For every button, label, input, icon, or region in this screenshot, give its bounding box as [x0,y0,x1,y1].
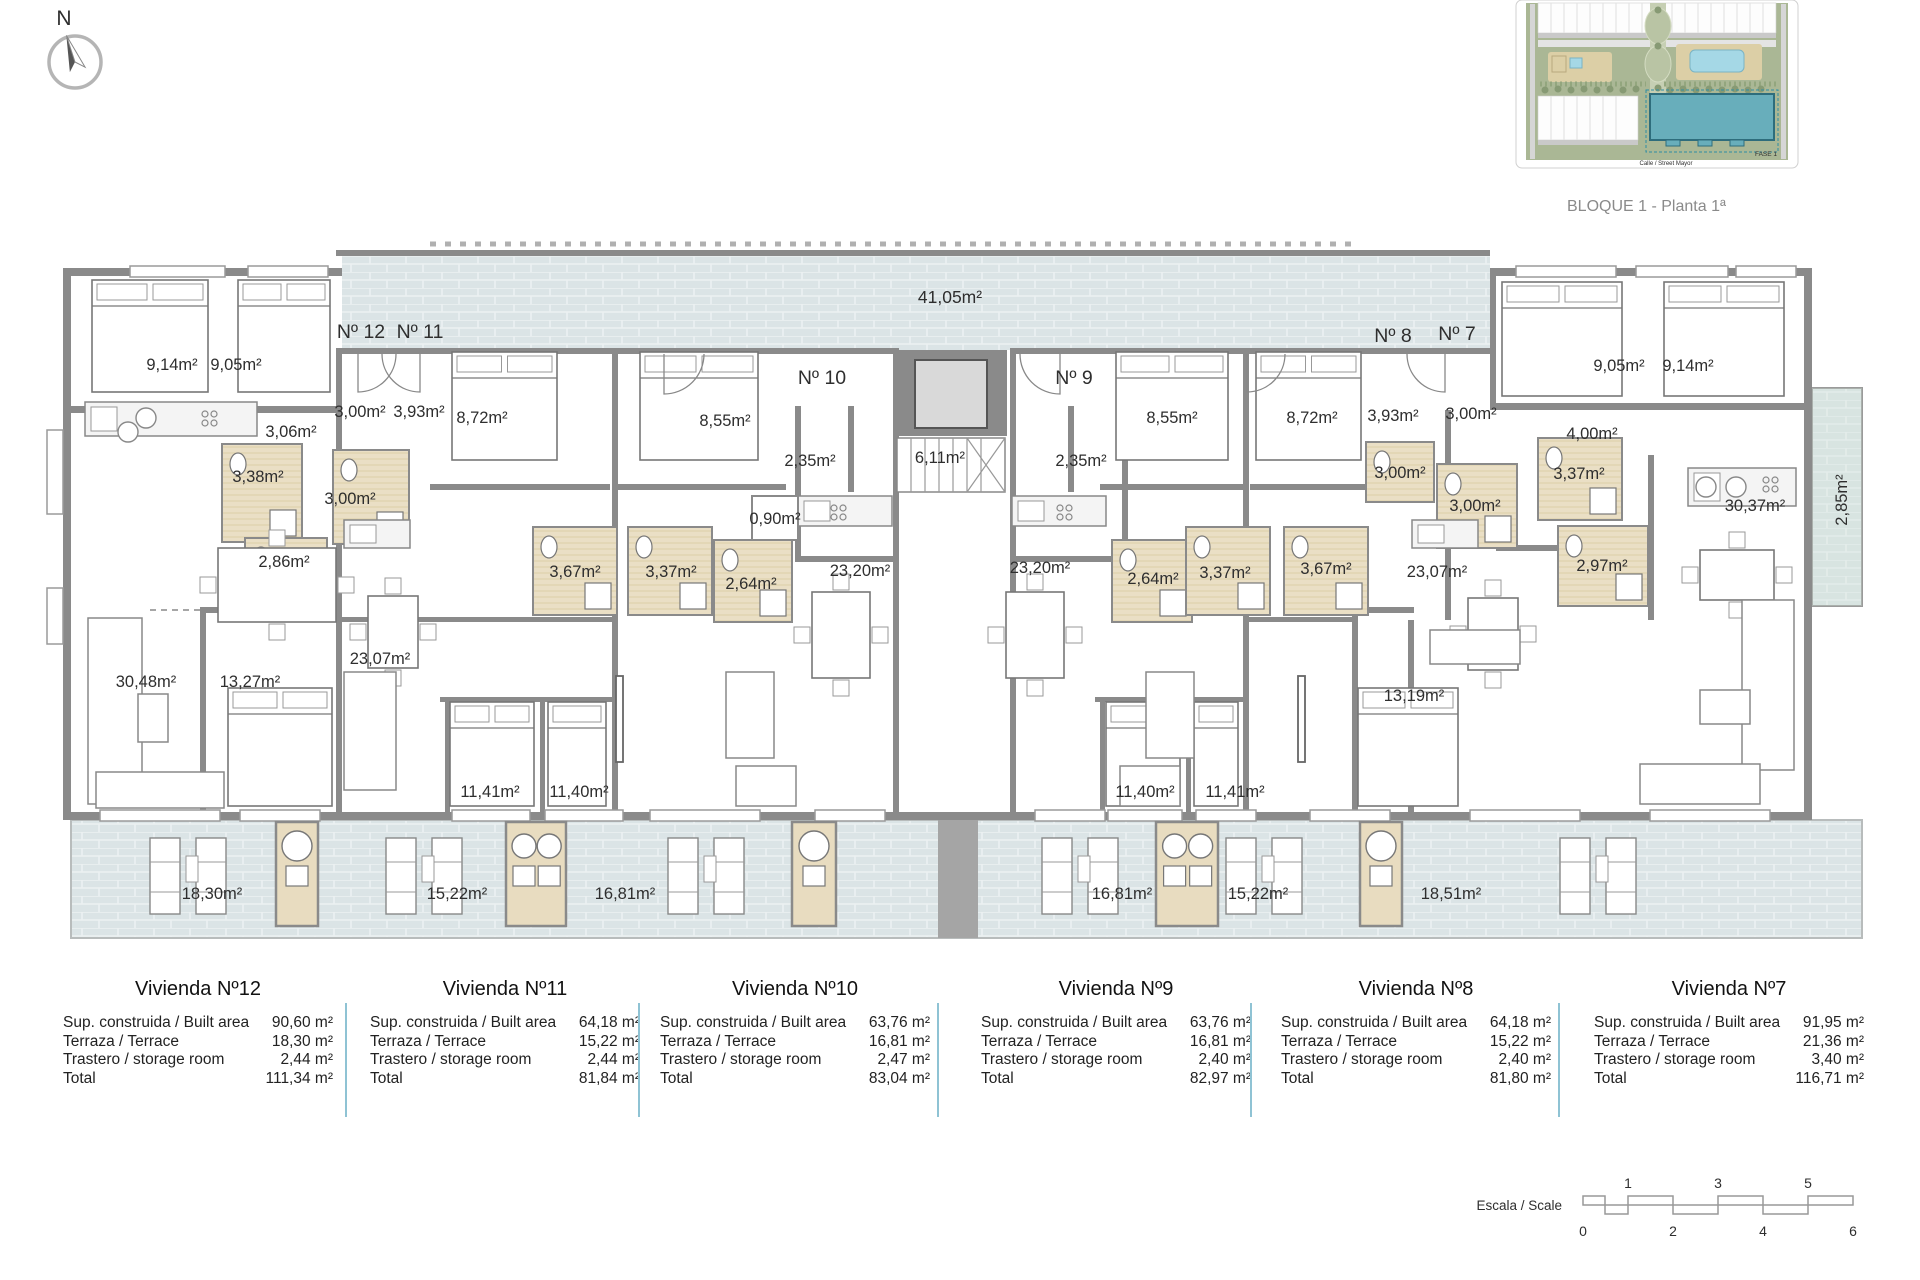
area-row-value: 16,81 m² [1190,1033,1251,1052]
area-row-label: Total [1281,1070,1314,1089]
area-row: Terraza / Terrace21,36 m² [1594,1033,1864,1052]
area-table-column: Vivienda Nº9Sup. construida / Built area… [981,978,1251,1088]
room-area-label: 9,05m² [1593,357,1645,375]
room-area-label: 23,07m² [1407,563,1468,581]
area-row: Sup. construida / Built area64,18 m² [370,1014,640,1033]
area-row: Total82,97 m² [981,1070,1251,1089]
scale-number: 3 [1714,1175,1722,1191]
top-terrace [342,256,1490,350]
room-area-label: 23,20m² [1010,559,1071,577]
room-area-label: 8,55m² [1146,409,1198,427]
scale-number: 6 [1849,1223,1857,1239]
bed [92,280,208,392]
sink [136,408,156,428]
sink [1726,477,1746,497]
vivienda-title: Vivienda Nº12 [63,978,333,1001]
room-area-label: 3,67m² [1300,560,1352,578]
bed [1664,282,1784,396]
terrace-storage [276,822,318,926]
area-row-label: Sup. construida / Built area [1281,1014,1467,1033]
sofa [726,672,774,758]
fase-label: FASE 1 [1755,151,1777,158]
sun-lounger [668,838,698,914]
sofa [96,772,224,808]
room-area-label: 3,93m² [393,403,445,421]
room-area-label: 15,22m² [1228,885,1289,903]
area-row-value: 111,34 m² [266,1070,334,1089]
vivienda-title: Vivienda Nº10 [660,978,930,1001]
area-row-label: Total [1594,1070,1627,1089]
room-area-label: 3,00m² [1374,464,1426,482]
area-row-value: 2,44 m² [587,1051,640,1070]
apartment-number-label: Nº 12 [337,321,385,343]
apartment-number-label: Nº 8 [1374,325,1411,347]
area-row-label: Terraza / Terrace [1594,1033,1710,1052]
area-row-value: 21,36 m² [1803,1033,1864,1052]
table-divider [937,1003,939,1117]
area-row-label: Terraza / Terrace [1281,1033,1397,1052]
room-area-label: 18,30m² [182,885,243,903]
area-table-column: Vivienda Nº7Sup. construida / Built area… [1594,978,1864,1088]
sofa [1146,672,1194,758]
sun-lounger [150,838,180,914]
area-row: Total111,34 m² [63,1070,333,1089]
bed [1502,282,1622,396]
area-row-label: Trastero / storage room [660,1051,821,1070]
area-row: Sup. construida / Built area63,76 m² [981,1014,1251,1033]
room-area-label: 8,55m² [699,412,751,430]
terrace-storage [506,822,566,926]
area-row-value: 81,80 m² [1490,1070,1551,1089]
vivienda-title: Vivienda Nº11 [370,978,640,1001]
sheet-caption: BLOQUE 1 - Planta 1ª [1567,198,1726,216]
sofa [1742,600,1794,770]
scale-label: Escala / Scale [1476,1198,1562,1213]
room-area-label: 3,00m² [1445,405,1497,423]
table-divider [1558,1003,1560,1117]
scale-number: 1 [1624,1175,1632,1191]
sink [118,422,138,442]
sun-lounger [1042,838,1072,914]
sofa [1700,690,1750,724]
room-area-label: 11,40m² [549,783,609,801]
scale-number: 4 [1759,1223,1767,1239]
room-area-label: 9,14m² [1662,357,1714,375]
area-row-value: 63,76 m² [869,1014,930,1033]
scale-number: 2 [1669,1223,1677,1239]
area-row-value: 2,40 m² [1198,1051,1251,1070]
room-area-label: 2,35m² [1055,452,1107,470]
sofa [1430,630,1520,664]
elevator [895,350,1007,436]
area-row-label: Total [981,1070,1014,1089]
apartment-number-label: Nº 10 [798,367,846,389]
area-row: Terraza / Terrace15,22 m² [1281,1033,1551,1052]
bloque1-highlight [1650,94,1774,146]
room-area-label: 2,64m² [1127,570,1179,588]
area-row-value: 63,76 m² [1190,1014,1251,1033]
room-area-label: 3,00m² [324,490,376,508]
bed [452,352,557,460]
room-area-label: 9,14m² [146,356,198,374]
area-row: Trastero / storage room2,44 m² [63,1051,333,1070]
area-row-label: Terraza / Terrace [370,1033,486,1052]
room-area-label: 2,85m² [1833,474,1851,526]
bathroom [222,444,302,542]
room-area-label: 30,37m² [1725,497,1786,515]
area-row: Trastero / storage room3,40 m² [1594,1051,1864,1070]
bed [228,688,332,806]
room-area-label: 23,07m² [350,650,411,668]
scale-number: 0 [1579,1223,1587,1239]
room-area-label: 16,81m² [595,885,656,903]
area-row-value: 91,95 m² [1803,1014,1864,1033]
area-row: Trastero / storage room2,40 m² [981,1051,1251,1070]
room-area-label: 2,64m² [725,575,777,593]
area-row-value: 3,40 m² [1811,1051,1864,1070]
sofa [138,694,168,742]
kitchen-counter [1412,520,1478,548]
sun-lounger [1560,838,1590,914]
area-row-label: Trastero / storage room [1594,1051,1755,1070]
area-row-value: 18,30 m² [272,1033,333,1052]
room-area-label: 8,72m² [1286,409,1338,427]
room-area-label: 13,27m² [220,673,281,691]
site-plan-thumbnail: FASE 1 Calle / Street Mayor [1516,0,1798,168]
kitchen-counter [85,402,257,436]
room-area-label: 30,48m² [116,673,177,691]
area-row-value: 90,60 m² [272,1014,333,1033]
apartment-number-label: Nº 11 [397,321,444,343]
area-row: Trastero / storage room2,44 m² [370,1051,640,1070]
area-row: Sup. construida / Built area64,18 m² [1281,1014,1551,1033]
terrace-storage [1156,822,1218,926]
area-row-value: 81,84 m² [579,1070,640,1089]
area-row-value: 2,44 m² [280,1051,333,1070]
table-divider [638,1003,640,1117]
apartment-number-label: Nº 7 [1438,323,1475,345]
bed [1256,352,1361,460]
area-row-label: Total [660,1070,693,1089]
tv-unit [616,676,623,762]
area-table-column: Vivienda Nº11Sup. construida / Built are… [370,978,640,1088]
area-row-label: Terraza / Terrace [660,1033,776,1052]
street-label: Calle / Street Mayor [1639,161,1692,167]
room-area-label: 16,81m² [1092,885,1153,903]
area-row-label: Terraza / Terrace [63,1033,179,1052]
room-area-label: 11,41m² [460,783,520,801]
apartment-number-label: Nº 9 [1055,367,1092,389]
room-area-label: 0,90m² [749,510,801,528]
area-row: Sup. construida / Built area90,60 m² [63,1014,333,1033]
room-area-label: 8,72m² [456,409,508,427]
area-row-label: Terraza / Terrace [981,1033,1097,1052]
bed [640,352,758,460]
area-row-label: Sup. construida / Built area [370,1014,556,1033]
room-area-label: 3,67m² [549,563,601,581]
floor-plan-sheet: N [0,0,1920,1280]
room-area-label: 3,00m² [334,403,386,421]
room-area-label: 23,20m² [830,562,891,580]
sofa [736,766,796,806]
area-row: Sup. construida / Built area91,95 m² [1594,1014,1864,1033]
area-table-column: Vivienda Nº12Sup. construida / Built are… [63,978,333,1088]
area-row-value: 15,22 m² [579,1033,640,1052]
sofa [344,672,396,790]
room-area-label: 15,22m² [427,885,488,903]
room-area-label: 18,51m² [1421,885,1482,903]
area-row-value: 64,18 m² [579,1014,640,1033]
area-row-value: 16,81 m² [869,1033,930,1052]
room-area-label: 11,41m² [1205,783,1265,801]
area-row-value: 116,71 m² [1795,1070,1864,1089]
area-row-value: 64,18 m² [1490,1014,1551,1033]
area-row-value: 2,47 m² [877,1051,930,1070]
sink [1696,477,1716,497]
area-row-value: 2,40 m² [1498,1051,1551,1070]
room-area-label: 3,38m² [232,468,284,486]
room-area-label: 13,19m² [1384,687,1445,705]
area-row-label: Sup. construida / Built area [660,1014,846,1033]
area-row-value: 83,04 m² [869,1070,930,1089]
area-row: Total81,84 m² [370,1070,640,1089]
area-row: Sup. construida / Built area63,76 m² [660,1014,930,1033]
room-area-label: 11,40m² [1115,783,1175,801]
scale-number: 5 [1804,1175,1812,1191]
room-area-label: 41,05m² [918,287,982,307]
area-row-label: Sup. construida / Built area [981,1014,1167,1033]
bed [1116,352,1228,460]
vivienda-title: Vivienda Nº7 [1594,978,1864,1001]
area-row-label: Trastero / storage room [370,1051,531,1070]
room-area-label: 4,00m² [1566,425,1618,443]
north-compass-icon: N [49,7,101,88]
room-area-label: 2,86m² [258,553,310,571]
building-plan: 41,05m²9,14m²9,05m²3,00m²3,93m²8,72m²8,5… [47,244,1862,938]
area-row: Terraza / Terrace15,22 m² [370,1033,640,1052]
area-table-column: Vivienda Nº10Sup. construida / Built are… [660,978,930,1088]
table-divider [345,1003,347,1117]
area-row-label: Total [370,1070,403,1089]
area-row: Terraza / Terrace16,81 m² [660,1033,930,1052]
bed [238,280,330,392]
compass-n-label: N [56,7,71,30]
area-row: Terraza / Terrace18,30 m² [63,1033,333,1052]
room-area-label: 3,93m² [1367,407,1419,425]
area-row: Total81,80 m² [1281,1070,1551,1089]
room-area-label: 3,06m² [265,423,317,441]
room-area-label: 3,37m² [1553,465,1605,483]
table-divider [1250,1003,1252,1117]
room-area-label: 3,00m² [1449,497,1501,515]
room-area-label: 2,97m² [1576,557,1628,575]
area-row: Total116,71 m² [1594,1070,1864,1089]
area-row-label: Trastero / storage room [981,1051,1142,1070]
bed [1358,688,1458,806]
area-row-value: 15,22 m² [1490,1033,1551,1052]
area-table-column: Vivienda Nº8Sup. construida / Built area… [1281,978,1551,1088]
area-row-label: Total [63,1070,96,1089]
terrace-storage [792,822,836,926]
area-row: Trastero / storage room2,40 m² [1281,1051,1551,1070]
area-row: Total83,04 m² [660,1070,930,1089]
area-row: Trastero / storage room2,47 m² [660,1051,930,1070]
area-row-label: Sup. construida / Built area [63,1014,249,1033]
area-row-label: Trastero / storage room [1281,1051,1442,1070]
sun-lounger [714,838,744,914]
kitchen-counter [344,520,410,548]
scale-bar: Escala / Scale 1350246 [1476,1175,1857,1239]
sun-lounger [386,838,416,914]
room-area-label: 3,37m² [645,563,697,581]
kitchen-counter [798,496,892,526]
terrace-storage [1360,822,1402,926]
area-row-label: Trastero / storage room [63,1051,224,1070]
vivienda-title: Vivienda Nº8 [1281,978,1551,1001]
room-area-label: 3,37m² [1199,564,1251,582]
area-row: Terraza / Terrace16,81 m² [981,1033,1251,1052]
tv-unit [1298,676,1305,762]
room-area-label: 6,11m² [915,449,966,467]
sun-lounger [1606,838,1636,914]
room-area-label: 9,05m² [210,356,262,374]
floor-plan-drawing: N [0,0,1920,1280]
vivienda-title: Vivienda Nº9 [981,978,1251,1001]
area-row-label: Sup. construida / Built area [1594,1014,1780,1033]
sofa [1640,764,1760,804]
room-area-label: 2,35m² [784,452,836,470]
area-row-value: 82,97 m² [1190,1070,1251,1089]
